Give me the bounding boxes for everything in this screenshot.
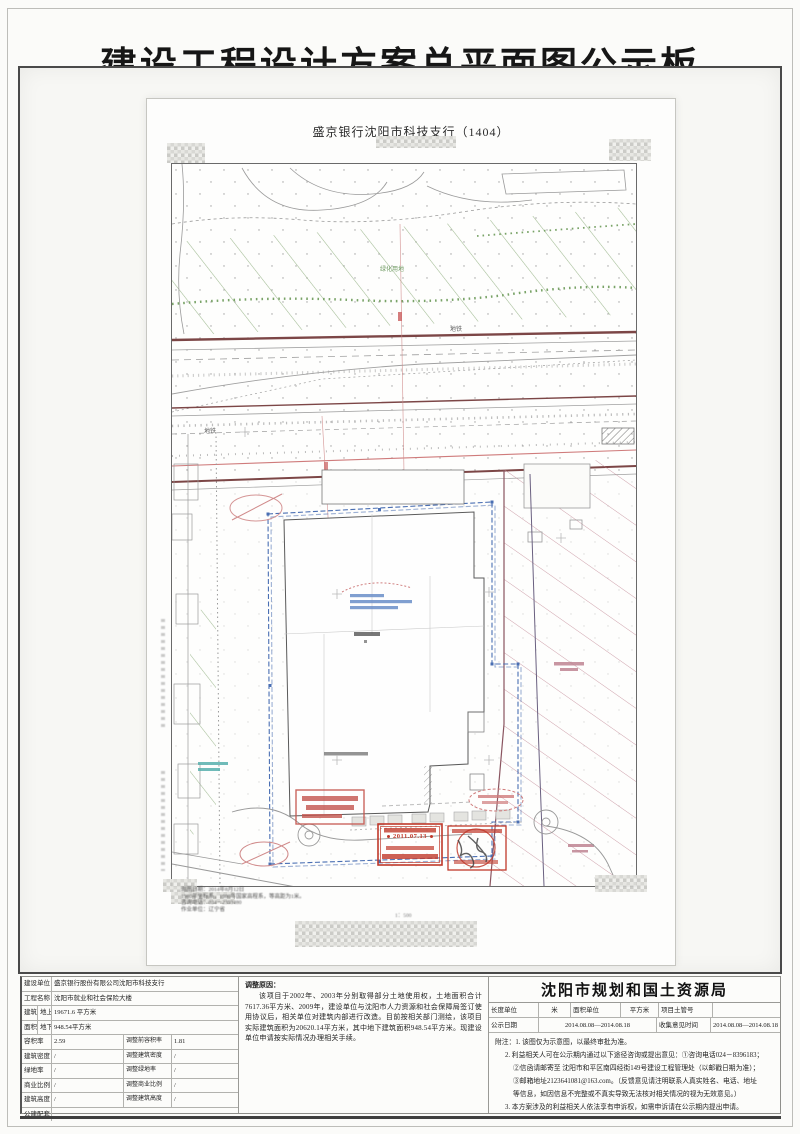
metric-adj-value: / xyxy=(172,1093,238,1107)
metric-value: 2.59 xyxy=(52,1035,124,1049)
table-row: 建筑高度 / 调整建筑高度 / xyxy=(22,1093,238,1108)
date-label: 公示日期 xyxy=(489,1018,539,1032)
plan-board: 盛京银行沈阳市科技支行（1404） xyxy=(18,66,782,974)
blurred-vertical-text xyxy=(161,771,165,871)
info-value: 盛京银行股份有限公司沈阳市科技支行 xyxy=(52,977,238,991)
metric-adj-value: / xyxy=(172,1079,238,1093)
approval-stamp-date: 2011.07.13 xyxy=(378,833,442,840)
redaction-mosaic xyxy=(295,921,477,947)
metric-adj-value: 1.81 xyxy=(172,1035,238,1049)
unit-label: 长度单位 xyxy=(489,1003,539,1017)
redaction-mosaic xyxy=(376,136,456,148)
info-label: 建设单位 xyxy=(22,977,52,991)
metro-label: 地铁 xyxy=(450,327,462,333)
unit-value: 米 xyxy=(539,1003,571,1017)
table-row: 公建配套 xyxy=(22,1108,238,1122)
metric-adj-label: 调整建筑密度 xyxy=(124,1050,172,1064)
note-line: ③邮箱地址2123641081@163.com。（反馈意见请注明联系人真实姓名、… xyxy=(495,1075,774,1088)
info-label: 工程名称 xyxy=(22,992,52,1006)
metric-label: 绿地率 xyxy=(22,1064,52,1078)
metric-adj-label: 调整绿地率 xyxy=(124,1064,172,1078)
metric-value: / xyxy=(52,1050,124,1064)
info-label: 公建配套 xyxy=(22,1108,52,1122)
metric-label: 建筑高度 xyxy=(22,1093,52,1107)
table-row: 商业比例 / 调整商业比例 / xyxy=(22,1079,238,1094)
date-value: 2014.08.08—2014.08.18 xyxy=(539,1018,657,1032)
note-line: 附注：1. 该图仅为示意图，以最终审批为准。 xyxy=(495,1036,774,1049)
authority-table: 沈阳市规划和国土资源局 长度单位 米 面积单位 平方米 项目土管号 公示日期 2… xyxy=(488,977,780,1113)
table-row: 公示日期 2014.08.08—2014.08.18 收集意见时间 2014.0… xyxy=(489,1018,780,1033)
sheet-footnotes: 测图日期：2014年8月12日 1980年坐标系，1980年国家高程系，等高距为… xyxy=(181,887,411,913)
redaction-mosaic xyxy=(609,139,651,161)
green-area-label: 绿化用地 xyxy=(380,267,404,273)
sheet-footnote: 作业单位：辽宁省 xyxy=(181,907,411,914)
adjust-reason-body: 该项目于2002年、2003年分别取得部分土地使用权，土地面积合计7617.36… xyxy=(245,991,482,1044)
table-row: 面积 地下 948.54平方米 xyxy=(22,1021,238,1036)
info-label: 面积 xyxy=(22,1021,38,1035)
info-value xyxy=(52,1108,238,1122)
unit-label: 面积单位 xyxy=(571,1003,621,1017)
unit-value xyxy=(713,1003,780,1017)
table-row: 绿地率 / 调整绿地率 / xyxy=(22,1064,238,1079)
metric-value: / xyxy=(52,1064,124,1078)
info-label: 建筑 xyxy=(22,1006,38,1020)
metric-label: 建筑密度 xyxy=(22,1050,52,1064)
redaction-mosaic xyxy=(595,875,647,892)
redaction-mosaic xyxy=(167,143,205,163)
metric-adj-label: 调整前容积率 xyxy=(124,1035,172,1049)
metric-label: 商业比例 xyxy=(22,1079,52,1093)
authority-notes: 附注：1. 该图仅为示意图，以最终审批为准。 2. 利益相关人可在公示期内通过以… xyxy=(489,1033,780,1114)
info-value: 沈阳市就业和社会保险大楼 xyxy=(52,992,238,1006)
scale-note: 1：500 xyxy=(395,911,412,919)
unit-value: 平方米 xyxy=(621,1003,659,1017)
info-sublabel: 地下 xyxy=(38,1021,52,1035)
adjust-reason-title: 调整原因： xyxy=(245,980,482,990)
info-panel: 建设单位 盛京银行股份有限公司沈阳市科技支行 工程名称 沈阳市就业和社会保险大楼… xyxy=(20,976,781,1114)
date-label: 收集意见时间 xyxy=(657,1018,711,1032)
metric-value: / xyxy=(52,1093,124,1107)
project-info-table: 建设单位 盛京银行股份有限公司沈阳市科技支行 工程名称 沈阳市就业和社会保险大楼… xyxy=(22,977,238,1113)
unit-label: 项目土管号 xyxy=(659,1003,713,1017)
table-row: 建设单位 盛京银行股份有限公司沈阳市科技支行 xyxy=(22,977,238,992)
site-plan-frame: 地铁 地铁 绿化用地 2011.07.13 xyxy=(171,163,637,887)
metric-adj-label: 调整商业比例 xyxy=(124,1079,172,1093)
table-row: 工程名称 沈阳市就业和社会保险大楼 xyxy=(22,992,238,1007)
metro-label: 地铁 xyxy=(204,429,216,435)
table-row: 长度单位 米 面积单位 平方米 项目土管号 xyxy=(489,1003,780,1018)
table-row: 建筑 地上 19671.6 平方米 xyxy=(22,1006,238,1021)
note-line: 2. 利益相关人可在公示期内通过以下途径咨询或提出意见：①咨询电话024－839… xyxy=(495,1049,774,1062)
metric-label: 容积率 xyxy=(22,1035,52,1049)
metric-adj-label: 调整建筑高度 xyxy=(124,1093,172,1107)
note-line: 3. 本方案涉及的利益相关人依法享有申诉权，如需申诉请在公示期内提出申请。 xyxy=(495,1101,774,1114)
table-row: 容积率 2.59 调整前容积率 1.81 xyxy=(22,1035,238,1050)
metric-adj-value: / xyxy=(172,1050,238,1064)
authority-title: 沈阳市规划和国土资源局 xyxy=(489,977,780,1003)
metric-adj-value: / xyxy=(172,1064,238,1078)
drawing-sheet: 盛京银行沈阳市科技支行（1404） xyxy=(146,98,676,966)
info-sublabel: 地上 xyxy=(38,1006,52,1020)
info-value: 19671.6 平方米 xyxy=(52,1006,238,1020)
date-value: 2014.08.08—2014.08.18 xyxy=(711,1018,780,1032)
metric-value: / xyxy=(52,1079,124,1093)
note-line: 等信息，如因信息不完整或不真实导致无法核对相关情况的视为无效意见。） xyxy=(495,1088,774,1101)
blurred-vertical-text xyxy=(161,619,165,729)
note-line: ②信函请邮寄至 沈阳市和平区南四经街149号建设工程管理处（以邮戳日期为准）； xyxy=(495,1062,774,1075)
table-row: 建筑密度 / 调整建筑密度 / xyxy=(22,1050,238,1065)
info-value: 948.54平方米 xyxy=(52,1021,238,1035)
adjust-reason-cell: 调整原因： 该项目于2002年、2003年分别取得部分土地使用权，土地面积合计7… xyxy=(238,977,488,1113)
